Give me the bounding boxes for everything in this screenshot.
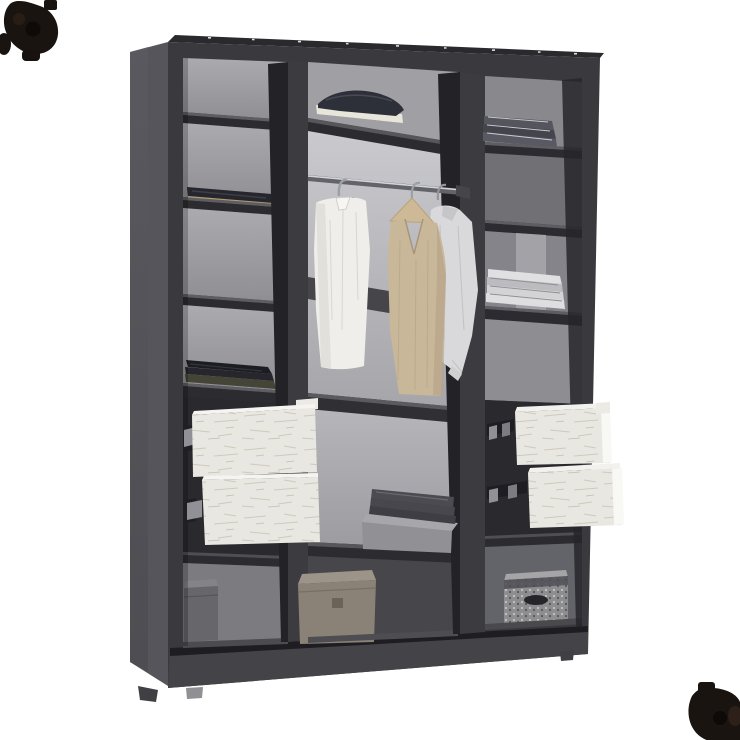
box-handle	[332, 598, 343, 608]
left-drawer-1-front	[192, 408, 317, 477]
right-drawer-1-tab	[596, 402, 610, 414]
rail-clip	[508, 484, 517, 499]
left-inner-shadow	[183, 58, 188, 646]
product-image-wardrobe	[0, 0, 740, 740]
small-gray-box	[184, 579, 218, 642]
basket-handle-hole	[524, 595, 548, 605]
divider-1-front	[288, 60, 308, 642]
watermark-hole	[713, 711, 727, 725]
right-drawer-back-upper	[485, 319, 582, 404]
watermark-object-top-left	[0, 0, 58, 61]
rail-clip	[187, 500, 202, 520]
right-drawer-1-front	[515, 408, 610, 465]
gray-towels-on-box	[362, 489, 458, 553]
plinth-foot-left	[186, 687, 203, 699]
right-column	[483, 76, 582, 630]
right-drawer-2-side	[612, 468, 624, 525]
rail-clip	[489, 488, 498, 503]
side-panel-foot	[138, 686, 158, 702]
watermark-hole	[26, 22, 41, 37]
left-drawer-2-front	[202, 477, 320, 545]
knit-basket	[504, 570, 568, 626]
watermark-object-bottom-right	[688, 682, 740, 740]
white-shirt-on-hanger	[314, 180, 370, 369]
rail-clip	[489, 425, 497, 440]
left-side-panel-shade	[130, 47, 148, 672]
right-drawer-2-front	[528, 468, 622, 528]
rail-clip	[502, 422, 510, 437]
taupe-storage-box	[298, 570, 376, 644]
wardrobe-scene	[0, 0, 740, 740]
